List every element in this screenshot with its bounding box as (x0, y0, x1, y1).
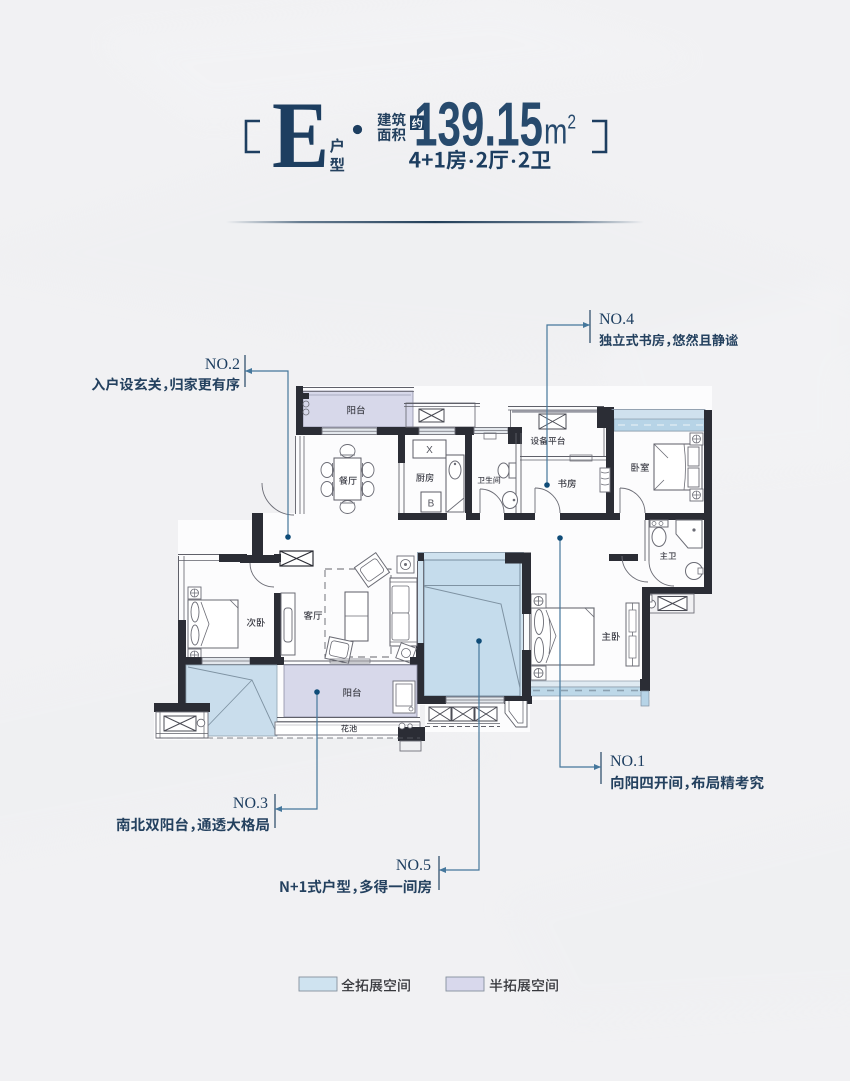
svg-text:NO.2: NO.2 (205, 356, 240, 373)
svg-text:X: X (426, 445, 433, 456)
svg-text:m: m (544, 111, 567, 151)
svg-text:NO.5: NO.5 (396, 857, 431, 874)
svg-text:NO.4: NO.4 (599, 311, 634, 328)
svg-text:NO.3: NO.3 (233, 795, 268, 812)
svg-text:E: E (272, 82, 329, 188)
svg-text:139.15: 139.15 (414, 90, 543, 159)
svg-text:2: 2 (567, 111, 576, 133)
svg-text:B: B (428, 499, 435, 510)
svg-text:NO.1: NO.1 (610, 753, 645, 770)
